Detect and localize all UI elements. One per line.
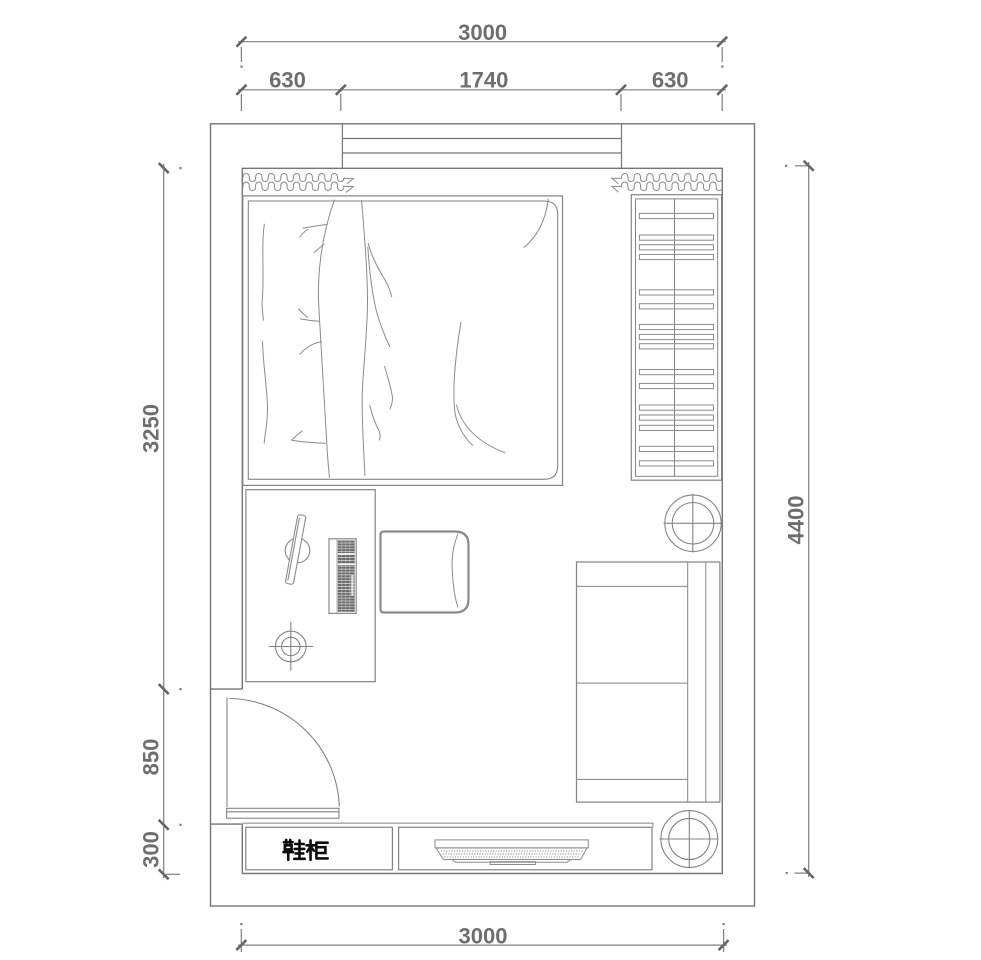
svg-text:630: 630	[269, 68, 306, 93]
svg-text:300: 300	[139, 831, 164, 868]
svg-text:3000: 3000	[458, 20, 507, 45]
svg-text:630: 630	[652, 68, 689, 93]
svg-text:850: 850	[139, 739, 164, 776]
svg-text:3250: 3250	[139, 404, 164, 453]
svg-text:3000: 3000	[459, 924, 508, 949]
svg-text:1740: 1740	[459, 68, 508, 93]
svg-text:4400: 4400	[784, 496, 809, 545]
